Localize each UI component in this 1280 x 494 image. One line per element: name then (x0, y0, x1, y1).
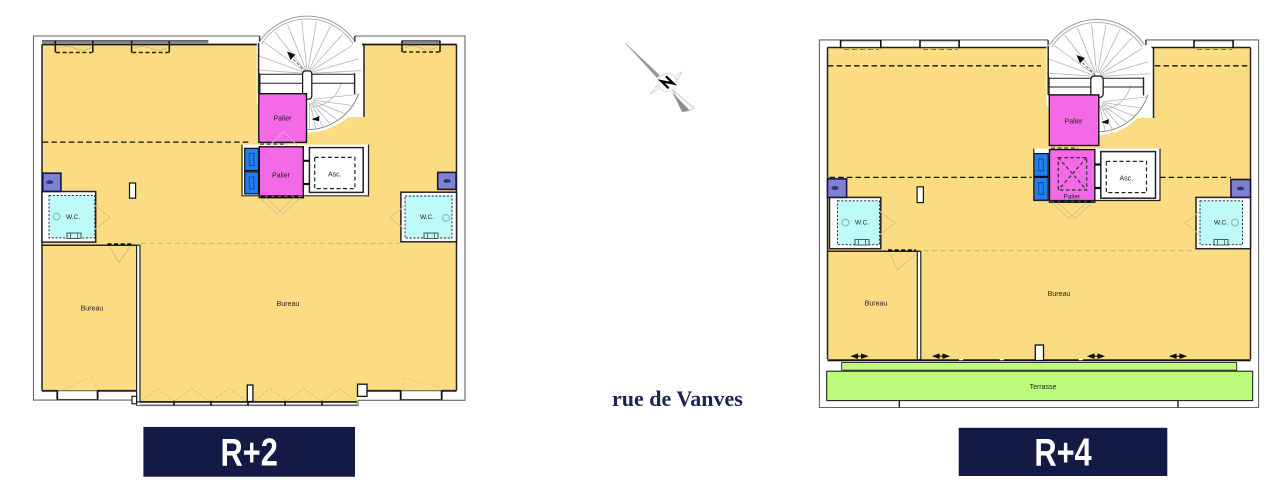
svg-text:Palier: Palier (1065, 119, 1084, 126)
svg-text:W.C.: W.C. (420, 214, 434, 221)
svg-text:W.C.: W.C. (855, 220, 869, 227)
svg-text:Bureau: Bureau (81, 306, 104, 313)
svg-text:Terrasse: Terrasse (1030, 384, 1057, 391)
svg-text:W.C.: W.C. (1214, 220, 1228, 227)
svg-text:W.C.: W.C. (66, 214, 80, 221)
svg-text:Bureau: Bureau (1048, 291, 1071, 298)
svg-text:Bureau: Bureau (277, 301, 300, 308)
svg-text:Asc.: Asc. (328, 172, 342, 179)
svg-text:Asc.: Asc. (1119, 176, 1133, 183)
svg-text:R+4: R+4 (1034, 431, 1092, 474)
svg-text:Bureau: Bureau (865, 301, 888, 308)
svg-text:Palier: Palier (274, 116, 293, 123)
svg-text:Palier: Palier (1063, 194, 1080, 201)
svg-text:rue de Vanves: rue de Vanves (612, 386, 743, 411)
svg-text:Palier: Palier (272, 173, 291, 180)
svg-text:R+2: R+2 (221, 431, 278, 474)
